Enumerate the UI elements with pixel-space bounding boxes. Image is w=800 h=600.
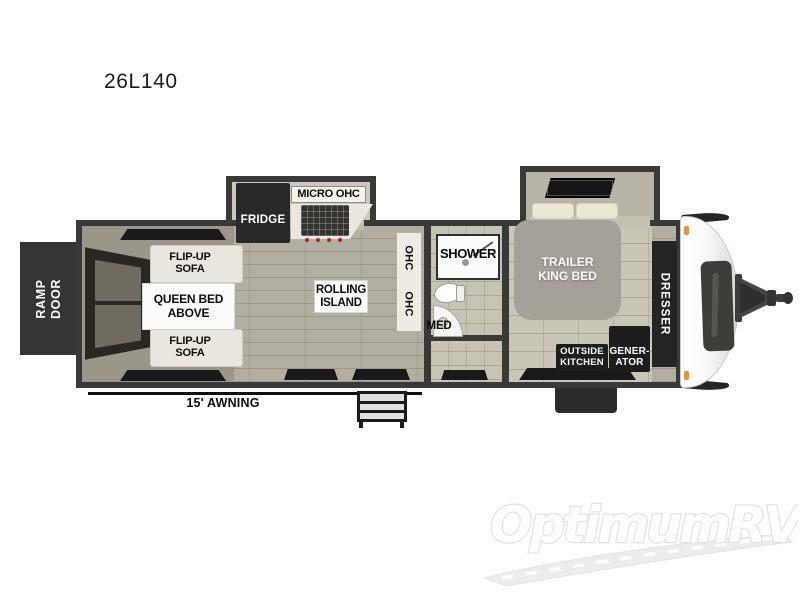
marker-light-top xyxy=(684,226,689,235)
garage-bottom-window xyxy=(120,370,226,381)
trailer-king-bed: TRAILER KING BED xyxy=(514,220,621,320)
outside-kitchen-label: OUTSIDE KITCHEN xyxy=(560,347,604,368)
bathroom-left-wall xyxy=(424,226,431,382)
queen-bed-above-label: QUEEN BED ABOVE xyxy=(154,293,224,320)
flip-up-sofa-bottom-label: FLIP-UP SOFA xyxy=(152,335,228,360)
ohc-upper: OHC xyxy=(396,238,422,278)
entry-steps xyxy=(357,391,407,422)
stove-knob xyxy=(338,238,342,242)
trailer-king-bed-label: TRAILER KING BED xyxy=(538,256,597,284)
optimumrv-watermark: OptimumRV xyxy=(466,480,798,598)
ramp-door-label: RAMP DOOR xyxy=(34,279,64,319)
step-rung xyxy=(360,401,404,404)
outside-kitchen: OUTSIDE KITCHEN xyxy=(556,344,608,371)
stove-knob xyxy=(305,238,309,242)
awning-label: 15' AWNING xyxy=(148,396,298,410)
bed-pillow-left xyxy=(532,203,574,219)
rolling-island-label: ROLLING ISLAND xyxy=(316,284,366,310)
dresser-label: DRESSER xyxy=(659,273,671,336)
ohc-lower-label: OHC xyxy=(403,291,415,316)
model-title: 26L140 xyxy=(104,70,178,94)
step-foot-right xyxy=(400,421,404,428)
hall-floor-mat xyxy=(441,370,488,380)
stove-cooktop xyxy=(301,205,349,236)
generator: GENER- ATOR xyxy=(609,326,650,372)
ohc-lower: OHC xyxy=(396,284,422,324)
bedroom-slideout-window xyxy=(545,178,615,198)
ohc-upper-label: OHC xyxy=(403,245,415,270)
garage-top-window xyxy=(120,229,226,240)
floorplan-page: OptimumRV 26L140 15' AWNING RAMP DOOR FR… xyxy=(0,0,800,600)
kitchen-bottom-window xyxy=(284,369,338,380)
flip-up-sofa-top-label: FLIP-UP SOFA xyxy=(152,251,228,276)
toilet-tank xyxy=(456,285,465,302)
dresser: DRESSER xyxy=(652,241,677,367)
fridge: FRIDGE xyxy=(236,183,290,243)
entry-door-mat xyxy=(352,369,410,380)
front-cap-window-reflection xyxy=(711,273,718,337)
micro-ohc-cabinet: MICRO OHC xyxy=(291,186,366,203)
stove-knobs xyxy=(305,238,351,243)
med-label: MED xyxy=(422,320,456,333)
fridge-label: FRIDGE xyxy=(241,214,286,227)
watermark-text: OptimumRV xyxy=(490,496,798,554)
ramp-door-block: RAMP DOOR xyxy=(20,242,78,355)
ramp-door-seam xyxy=(95,301,141,305)
hitch-a-frame xyxy=(735,268,793,328)
generator-label: GENER- ATOR xyxy=(609,346,649,368)
step-rung xyxy=(360,410,404,413)
marker-light-bottom xyxy=(684,371,689,380)
stove-knob xyxy=(327,238,331,242)
shower-label: SHOWER xyxy=(434,247,502,262)
step-foot-left xyxy=(359,421,363,428)
outside-kitchen-compartment xyxy=(555,388,617,413)
stove-knob xyxy=(316,238,320,242)
bed-pillow-right xyxy=(576,203,618,219)
rolling-island: ROLLING ISLAND xyxy=(314,280,368,313)
queen-bed-above: QUEEN BED ABOVE xyxy=(142,283,235,330)
bathroom-right-wall xyxy=(502,226,509,382)
